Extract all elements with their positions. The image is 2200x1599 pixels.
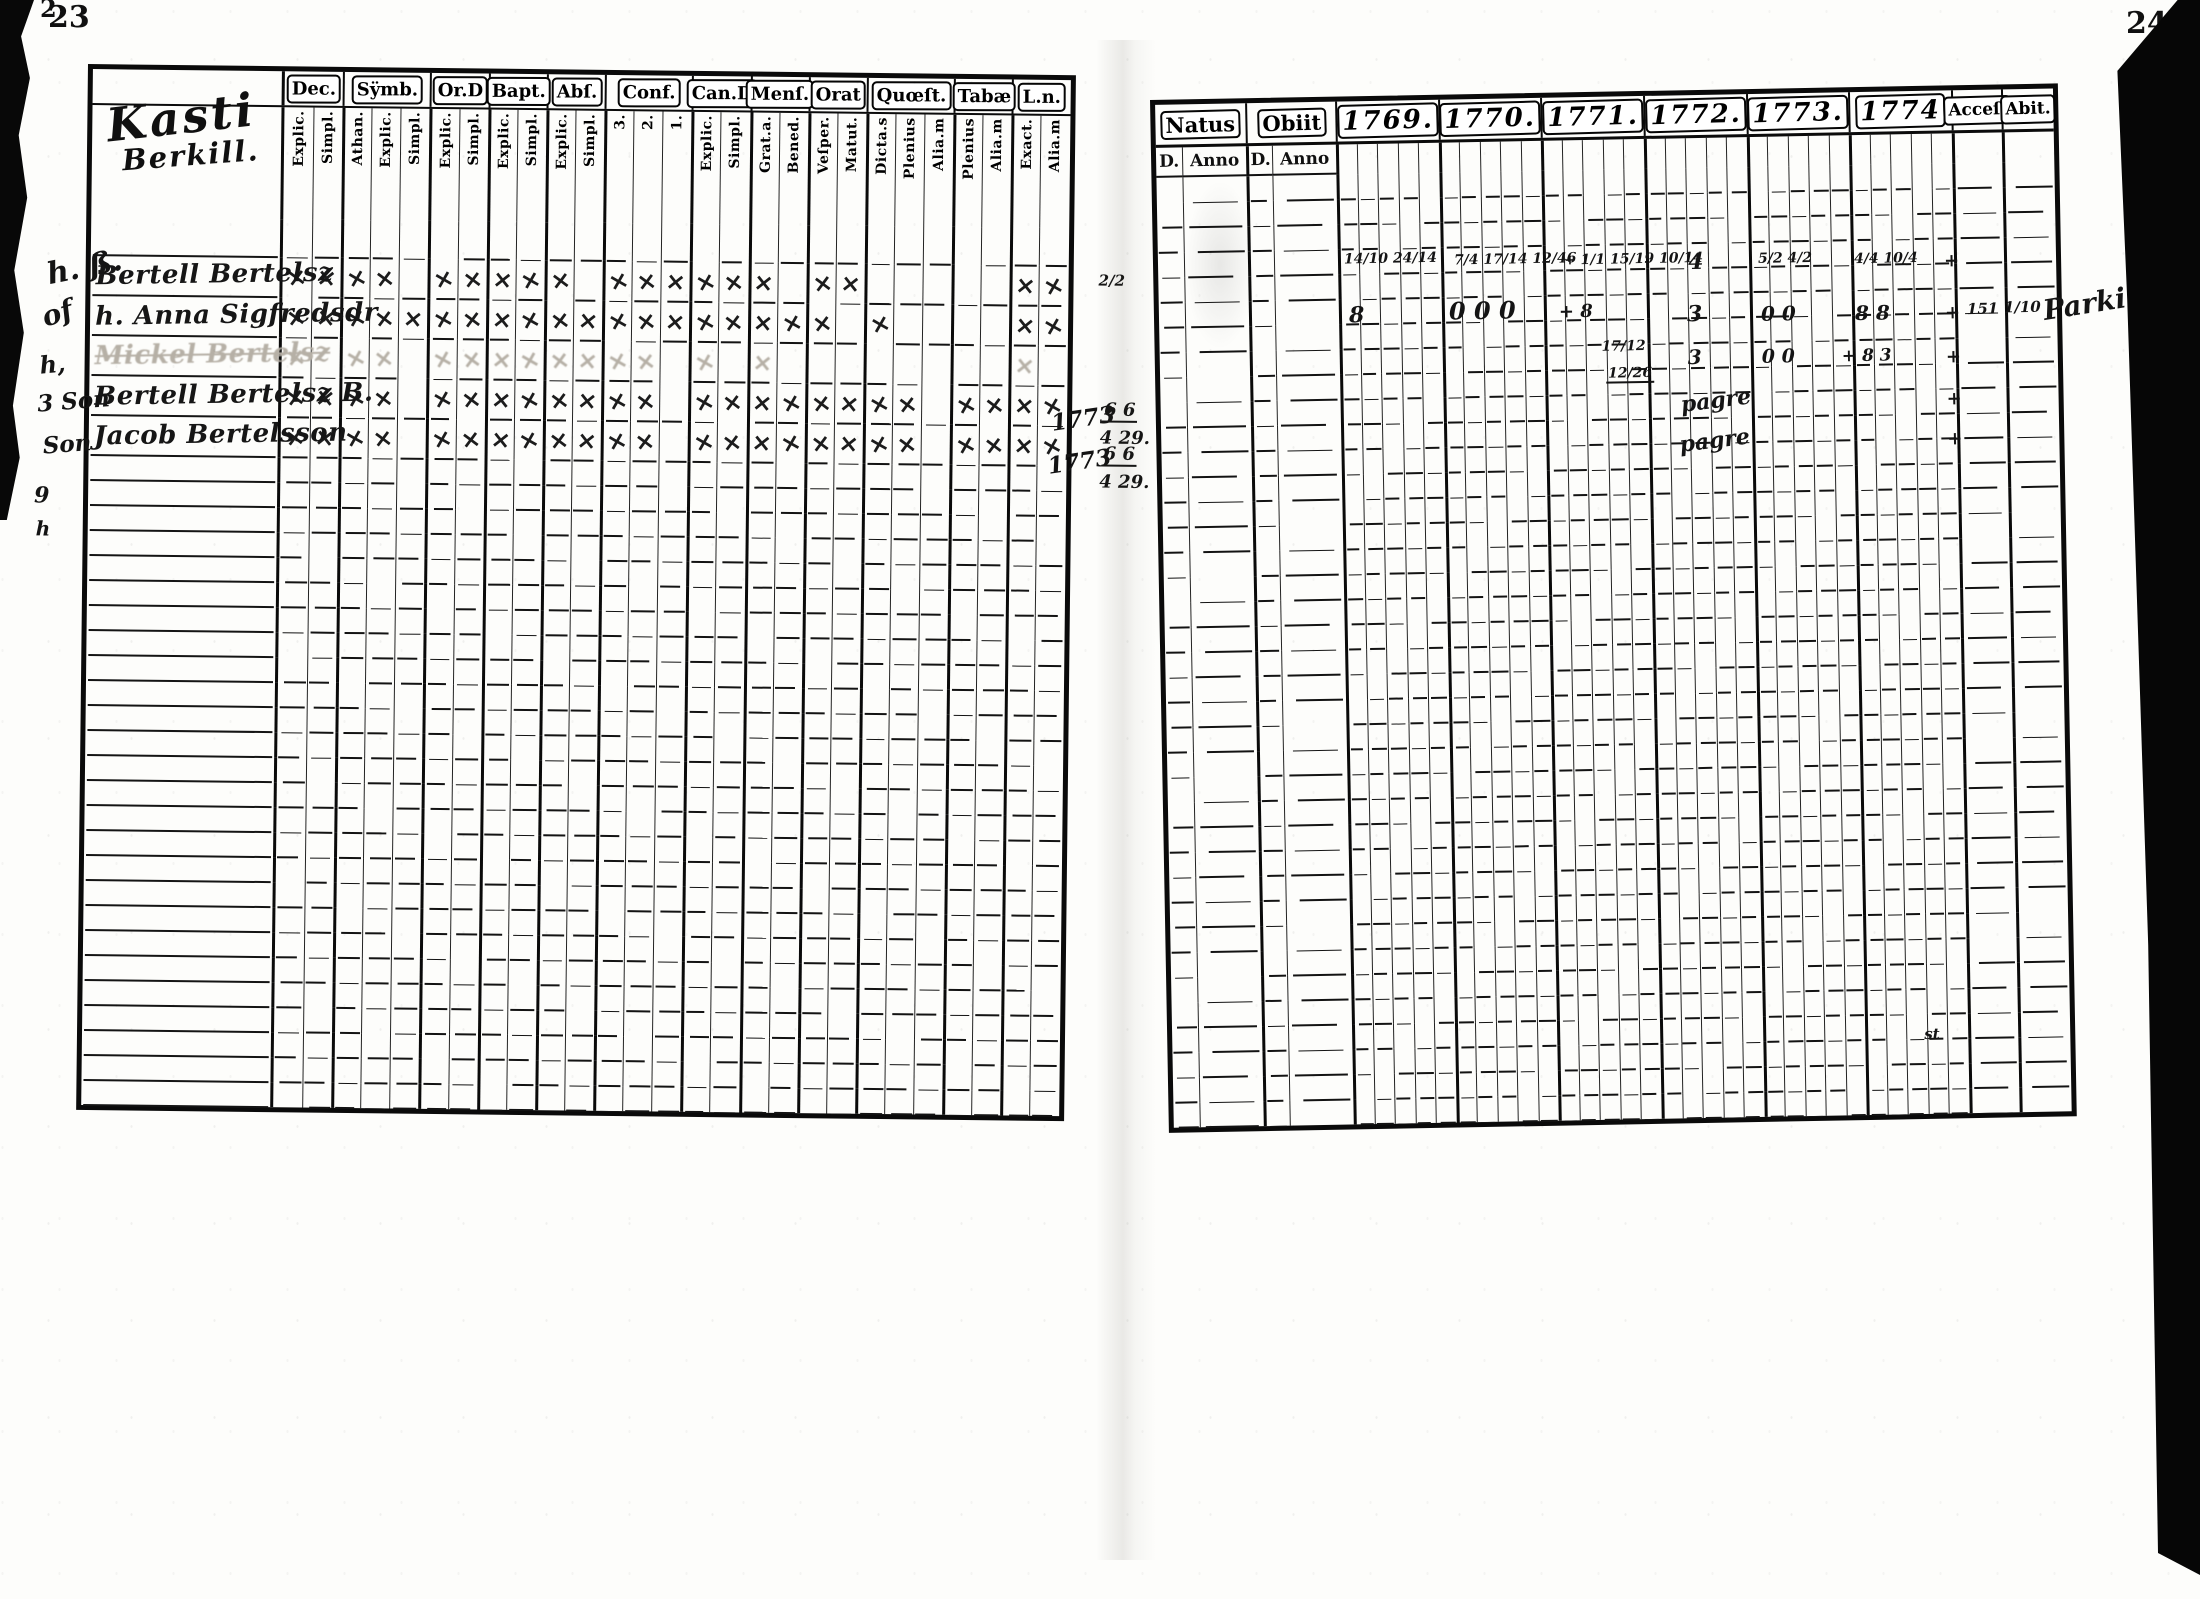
grid-cell [1923, 789, 1944, 814]
grid-cell [1609, 469, 1630, 494]
grid-cell [1370, 899, 1391, 924]
grid-cell [1404, 498, 1425, 523]
year-subcolumn [1911, 134, 1932, 164]
grid-cell [451, 809, 480, 834]
grid-cell: × [426, 379, 456, 419]
entry-name-cell: Bertell Bertelsz B. [89, 375, 281, 417]
grid-cell [334, 833, 363, 858]
grid-cell [1959, 537, 2009, 563]
grid-cell [1920, 639, 1941, 664]
grid-cell [1743, 1092, 1764, 1117]
grid-cell [1386, 623, 1407, 648]
grid-cell [565, 1010, 594, 1035]
tail-subcolumn [2002, 131, 2055, 162]
grid-cell: × [572, 341, 602, 381]
grid-cell [1421, 298, 1442, 323]
grid-cell [687, 512, 716, 537]
grid-cell [1039, 228, 1069, 266]
grid-cell: × [456, 339, 486, 379]
grid-cell [1740, 892, 1761, 917]
grid-cell [653, 936, 682, 961]
grid-cell [2006, 386, 2058, 412]
grid-cell [917, 714, 946, 739]
grid-cell [1758, 767, 1779, 792]
grid-cell: × [689, 302, 719, 342]
grid-cell [541, 560, 570, 585]
grid-cell: × [892, 384, 922, 424]
grid-cell [1875, 414, 1896, 439]
grid-cell [1281, 650, 1345, 676]
grid-cell [1962, 687, 2012, 713]
grid-cell [1788, 166, 1809, 191]
grid-cell [1893, 289, 1914, 314]
grid-cell [1346, 724, 1367, 749]
grid-cell [1727, 217, 1748, 242]
grid-cell [1351, 974, 1372, 999]
grid-cell [1734, 567, 1755, 592]
grid-cell [454, 509, 483, 534]
grid-cell [1570, 595, 1591, 620]
grid-cell [1030, 1016, 1059, 1041]
grid-cell [1706, 192, 1727, 217]
handwritten-note: 0 0 [1762, 347, 1795, 367]
grid-cell [1569, 545, 1590, 570]
grid-cell [2013, 736, 2065, 762]
grid-cell [917, 739, 946, 764]
handwritten-note: h, [39, 351, 67, 377]
grid-cell [1547, 470, 1568, 495]
grid-cell [739, 1087, 768, 1112]
grid-cell [1698, 868, 1719, 893]
grid-cell [337, 583, 366, 608]
grid-cell [919, 539, 948, 564]
grid-cell [1031, 941, 1060, 966]
grid-cell [1277, 425, 1341, 451]
grid-cell [1699, 918, 1720, 943]
x-mark: × [460, 346, 483, 373]
grid-cell [1958, 487, 2008, 513]
handwritten-note: 3 [1687, 303, 1703, 325]
grid-cell [1842, 865, 1863, 890]
x-mark: × [778, 389, 804, 417]
grid-cell [1482, 272, 1503, 297]
sub-header-cell: Simpl. [516, 110, 546, 222]
grid-cell [1002, 990, 1031, 1015]
grid-cell [1351, 949, 1372, 974]
grid-cell [1523, 271, 1544, 296]
grid-cell [739, 1062, 768, 1087]
grid-cell [479, 884, 508, 909]
grid-cell [1455, 1022, 1476, 1047]
grid-cell [1262, 1051, 1288, 1076]
grid-cell [976, 640, 1005, 665]
grid-cell [1900, 689, 1921, 714]
grid-cell [1394, 1098, 1415, 1123]
grid-cell [1871, 214, 1892, 239]
grid-cell [1584, 220, 1605, 245]
grid-cell [539, 710, 568, 735]
grid-cell [1579, 1095, 1600, 1120]
sub-header-label: 2. [640, 114, 656, 130]
grid-cell [976, 690, 1005, 715]
grid-cell [1734, 592, 1755, 617]
grid-cell [1467, 572, 1488, 597]
grid-cell [1198, 1001, 1262, 1027]
grid-cell [1251, 451, 1277, 476]
grid-cell [1817, 615, 1838, 640]
grid-cell [365, 683, 394, 708]
grid-cell [1509, 646, 1530, 671]
grid-cell [1851, 215, 1872, 240]
grid-cell [1856, 490, 1877, 515]
grid-cell [1658, 918, 1679, 943]
grid-cell: × [862, 424, 892, 464]
grid-cell [1619, 1019, 1640, 1044]
grid-cell [1714, 592, 1735, 617]
grid-cell [798, 988, 827, 1013]
grid-cell [1410, 848, 1431, 873]
grid-cell [1389, 798, 1410, 823]
grid-cell [542, 510, 571, 535]
grid-cell [710, 1087, 739, 1112]
name-cell [87, 555, 279, 582]
grid-cell [1624, 194, 1645, 219]
grid-cell [1677, 818, 1698, 843]
grid-cell [1553, 795, 1574, 820]
grid-cell [1855, 440, 1876, 465]
sub-header-label: Athan. [350, 111, 367, 166]
grid-cell [952, 227, 982, 265]
grid-cell [540, 660, 569, 685]
grid-cell [279, 557, 308, 582]
grid-cell [423, 709, 452, 734]
grid-cell [1898, 589, 1919, 614]
column-label: 1769. [1337, 102, 1439, 139]
grid-cell [594, 1036, 623, 1061]
grid-cell [1433, 948, 1454, 973]
x-mark: × [371, 425, 394, 452]
grid-cell [1480, 172, 1501, 197]
grid-cell [484, 460, 513, 485]
handwritten-note: 8 [1349, 304, 1365, 326]
grid-cell [1403, 448, 1424, 473]
x-mark: × [752, 350, 775, 376]
grid-cell [1410, 823, 1431, 848]
grid-cell [538, 860, 567, 885]
grid-cell [1939, 563, 1960, 588]
grid-cell [1407, 648, 1428, 673]
grid-cell [1426, 598, 1447, 623]
grid-cell [1188, 501, 1252, 527]
grid-cell [1529, 596, 1550, 621]
grid-cell [1349, 874, 1370, 899]
grid-cell [951, 305, 981, 345]
grid-cell [1781, 916, 1802, 941]
grid-cell [743, 737, 772, 762]
grid-cell [946, 765, 975, 790]
grid-cell [277, 732, 306, 757]
grid-cell [1944, 813, 1965, 838]
grid-cell [542, 485, 571, 510]
grid-cell [1003, 890, 1032, 915]
grid-cell [419, 1009, 448, 1034]
grid-cell [1792, 391, 1813, 416]
grid-cell [1858, 615, 1879, 640]
grid-cell [1428, 673, 1449, 698]
grid-cell [973, 915, 1002, 940]
sub-header-label: Explic. [699, 115, 716, 172]
grid-cell [918, 664, 947, 689]
grid-cell: × [573, 301, 603, 341]
grid-cell [1713, 567, 1734, 592]
grid-cell [2009, 536, 2061, 562]
grid-cell [1947, 988, 1968, 1013]
grid-cell [742, 762, 771, 787]
grid-cell [687, 487, 716, 512]
grid-cell [1260, 901, 1286, 926]
grid-cell [1523, 296, 1544, 321]
grid-cell [1532, 771, 1553, 796]
grid-cell [1850, 190, 1871, 215]
grid-cell [1422, 373, 1443, 398]
grid-cell [1496, 1046, 1517, 1071]
grid-cell [1680, 1018, 1701, 1043]
grid-cell [1774, 516, 1795, 541]
grid-cell [625, 836, 654, 861]
sub-header-cell: Alia.m [1040, 116, 1070, 228]
grid-cell [308, 558, 337, 583]
grid-cell [1596, 870, 1617, 895]
grid-cell [393, 759, 422, 784]
grid-cell [538, 835, 567, 860]
grid-cell [1512, 796, 1533, 821]
grid-cell [1954, 237, 2004, 263]
grid-cell [1960, 587, 2010, 613]
grid-cell [1536, 971, 1557, 996]
grid-cell [1544, 270, 1565, 295]
grid-cell [537, 885, 566, 910]
grid-cell [1447, 622, 1468, 647]
grid-cell [1527, 496, 1548, 521]
grid-cell [862, 489, 891, 514]
grid-cell [480, 809, 509, 834]
grid-cell [714, 712, 743, 737]
grid-cell [1474, 947, 1495, 972]
grid-cell [1738, 792, 1759, 817]
grid-cell [1341, 449, 1362, 474]
grid-cell [1881, 739, 1902, 764]
grid-cell [1864, 940, 1885, 965]
grid-cell [1263, 1076, 1289, 1101]
grid-cell [626, 761, 655, 786]
grid-cell: × [950, 425, 980, 465]
grid-cell [772, 738, 801, 763]
grid-cell [457, 221, 487, 259]
grid-cell [887, 814, 916, 839]
grid-cell [1547, 445, 1568, 470]
grid-cell [1463, 347, 1484, 372]
grid-cell [686, 637, 715, 662]
sub-header-cell: Simpl. [400, 109, 430, 221]
column-group-5: Conf. [605, 75, 693, 110]
x-mark: × [753, 270, 776, 296]
grid-cell [919, 564, 948, 589]
grid-cell [1366, 674, 1387, 699]
grid-cell [1800, 841, 1821, 866]
grid-cell [1492, 846, 1513, 871]
grid-cell [1701, 1043, 1722, 1068]
grid-cell [1007, 540, 1036, 565]
grid-cell [1399, 223, 1420, 248]
grid-cell [309, 508, 338, 533]
grid-cell: × [457, 259, 487, 299]
sub-header-label: Explic. [437, 112, 454, 169]
grid-cell [304, 958, 333, 983]
grid-cell [1402, 398, 1423, 423]
grid-cell [1412, 948, 1433, 973]
grid-cell [773, 638, 802, 663]
right-column-header-8: Acceſ. [1951, 89, 2002, 130]
grid-cell [1657, 868, 1678, 893]
grid-cell [864, 264, 894, 304]
grid-cell [1342, 474, 1363, 499]
grid-cell [422, 809, 451, 834]
grid-cell [1768, 216, 1789, 241]
grid-cell [1260, 926, 1286, 951]
grid-cell [1592, 695, 1613, 720]
grid-cell [1600, 1095, 1621, 1120]
grid-cell: × [368, 418, 398, 458]
grid-cell [1736, 692, 1757, 717]
grid-cell [1445, 472, 1466, 497]
grid-cell [1878, 614, 1899, 639]
grid-cell [1872, 264, 1893, 289]
grid-cell [1597, 970, 1618, 995]
grid-cell [945, 840, 974, 865]
grid-cell [1517, 1071, 1538, 1096]
grid-cell [363, 858, 392, 883]
grid-cell [478, 984, 507, 1009]
grid-cell [1607, 394, 1628, 419]
grid-cell [279, 607, 308, 632]
grid-cell [2018, 1011, 2070, 1037]
grid-cell: × [601, 381, 631, 421]
grid-cell [978, 490, 1007, 515]
grid-cell [1721, 1017, 1742, 1042]
grid-cell [453, 634, 482, 659]
grid-cell [1778, 766, 1799, 791]
grid-cell [975, 815, 1004, 840]
grid-cell [1739, 842, 1760, 867]
x-mark: × [372, 345, 395, 372]
grid-cell [274, 1032, 303, 1057]
grid-cell [894, 226, 924, 264]
grid-cell [1391, 923, 1412, 948]
x-mark: × [866, 390, 892, 418]
grid-cell [536, 1035, 565, 1060]
grid-cell [1778, 716, 1799, 741]
entry-name-cell: Mickel Bertelsz [89, 335, 281, 377]
grid-cell [1433, 973, 1454, 998]
grid-cell [1196, 926, 1260, 952]
grid-cell [1383, 473, 1404, 498]
grid-cell [538, 785, 567, 810]
x-mark: × [809, 390, 832, 417]
grid-cell [1566, 370, 1587, 395]
grid-cell [1286, 899, 1350, 925]
grid-cell [1186, 376, 1250, 402]
x-mark: × [547, 427, 570, 454]
grid-cell: × [341, 258, 371, 298]
grid-cell [1450, 747, 1471, 772]
grid-cell [713, 812, 742, 837]
grid-cell [716, 487, 745, 512]
grid-cell [948, 565, 977, 590]
grid-cell [1472, 847, 1493, 872]
grid-cell [653, 911, 682, 936]
grid-cell [421, 909, 450, 934]
x-mark: × [547, 387, 570, 414]
grid-cell [2002, 161, 2054, 187]
grid-cell [1409, 798, 1430, 823]
grid-cell [1922, 739, 1943, 764]
grid-cell: × [950, 385, 980, 425]
grid-cell [1809, 216, 1830, 241]
grid-cell [1815, 516, 1836, 541]
grid-cell [1537, 1046, 1558, 1071]
grid-cell [654, 811, 683, 836]
grid-cell [1884, 939, 1905, 964]
grid-cell [1280, 600, 1344, 626]
grid-cell [1405, 573, 1426, 598]
grid-cell [1569, 520, 1590, 545]
grid-cell [1640, 1044, 1661, 1069]
grid-cell [332, 1058, 361, 1083]
grid-cell [1198, 1051, 1262, 1077]
grid-cell [1718, 817, 1739, 842]
grid-cell [1638, 944, 1659, 969]
grid-cell [1167, 777, 1193, 802]
grid-cell [1380, 323, 1401, 348]
grid-cell [1163, 552, 1189, 577]
grid-cell [2006, 361, 2058, 387]
grid-cell [424, 609, 453, 634]
handwritten-note: 3 [1688, 347, 1702, 367]
grid-cell [740, 962, 769, 987]
name-cell [87, 605, 279, 632]
grid-cell [1514, 896, 1535, 921]
grid-cell [1624, 169, 1645, 194]
grid-cell: × [718, 302, 748, 342]
grid-cell [1002, 965, 1031, 990]
grid-cell [1862, 865, 1883, 890]
grid-cell [1157, 202, 1183, 227]
grid-cell [596, 861, 625, 886]
grid-cell [1819, 740, 1840, 765]
handwritten-note: 4 [1688, 251, 1704, 273]
grid-cell [886, 914, 915, 939]
column-group-1: Sÿmb. [343, 72, 431, 107]
grid-cell [1898, 564, 1919, 589]
grid-cell [1901, 714, 1922, 739]
grid-cell [1708, 292, 1729, 317]
grid-cell [718, 342, 748, 382]
grid-cell: × [515, 260, 545, 300]
grid-cell [397, 459, 426, 484]
grid-cell [1193, 776, 1257, 802]
grid-cell [1669, 368, 1690, 393]
grid-cell [1820, 815, 1841, 840]
